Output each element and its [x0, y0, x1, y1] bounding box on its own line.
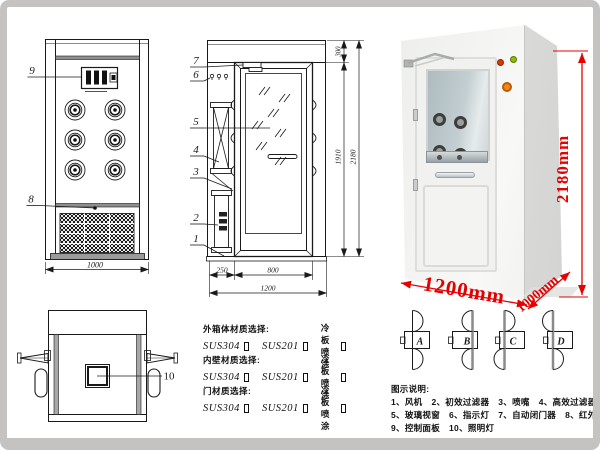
- material-selection: 外箱体材质选择: SUS304 SUS201 冷板喷涂 内壁材质选择: SUS3…: [203, 323, 359, 416]
- legend: 图示说明: 1、风机 2、初效过滤器 3、喷嘴 4、高效过滤器 5、玻璃视窗 6…: [391, 383, 600, 435]
- legend-item: 5、玻璃视窗: [391, 409, 440, 422]
- checkbox[interactable]: [244, 342, 249, 351]
- air-return-grille: [60, 214, 134, 253]
- legend-item: 3、喷嘴: [498, 396, 529, 409]
- nozzle: [433, 113, 446, 126]
- side-label-3: 3: [192, 166, 199, 178]
- door-hinge: [413, 109, 418, 121]
- legend-row: 5、玻璃视窗 6、指示灯 7、自动闭门器 8、红外线感应器: [391, 409, 600, 422]
- door-swing-C: [494, 311, 524, 370]
- legend-item: 1、风机: [391, 396, 422, 409]
- product-photo: [379, 15, 600, 307]
- checkbox[interactable]: [341, 404, 346, 413]
- side-label-2: 2: [193, 212, 199, 224]
- air-shower-datasheet-page: 外箱体材质选择: SUS304 SUS201 冷板喷涂 内壁材质选择: SUS3…: [0, 0, 600, 450]
- checkbox[interactable]: [303, 373, 308, 382]
- control-panel-strip: [426, 151, 488, 163]
- door-config-label-D: D: [556, 337, 564, 348]
- dim-250: 250: [216, 266, 228, 275]
- legend-row: 9、控制面板 10、照明灯: [391, 422, 600, 435]
- floor-shadow: [523, 287, 579, 297]
- door-swing-A: [401, 311, 430, 370]
- legend-item: 2、初效过滤器: [431, 396, 489, 409]
- material-option-label: SUS304: [203, 372, 240, 383]
- indicator-light-red: [497, 59, 504, 66]
- indicator-light-green: [510, 56, 517, 63]
- legend-item: 8、红外线感应器: [565, 409, 600, 422]
- material-option-label: SUS201: [262, 403, 299, 414]
- legend-item: 4、高效过滤器: [539, 396, 597, 409]
- top-view-drawing: [18, 311, 178, 422]
- checkbox[interactable]: [303, 404, 308, 413]
- front-view-drawing: [27, 40, 149, 275]
- side-label-5: 5: [193, 116, 199, 128]
- control-knob: [437, 155, 442, 160]
- front-label-9: 9: [29, 65, 35, 77]
- dim-1910: 1910: [334, 149, 343, 164]
- material-options-row: SUS304 SUS201 冷板喷涂: [203, 400, 359, 416]
- nozzle: [454, 116, 467, 129]
- legend-item: 6、指示灯: [449, 409, 489, 422]
- door-config-label-A: A: [416, 337, 424, 348]
- door-lower-panel: [423, 185, 489, 267]
- side-nozzle-profiles: [231, 100, 316, 176]
- control-knob: [457, 155, 462, 160]
- front-label-8: 8: [28, 194, 34, 206]
- dim-300: 300: [336, 46, 343, 58]
- material-options-row: SUS304 SUS201 冷板喷涂: [203, 338, 359, 354]
- front-width-dim: 1000: [87, 261, 103, 270]
- door-swing-D: [543, 311, 573, 370]
- checkbox[interactable]: [341, 342, 346, 351]
- checkbox[interactable]: [303, 342, 308, 351]
- material-option-label: SUS304: [203, 403, 240, 414]
- door-glass-window: [426, 69, 490, 161]
- cabinet-door: [415, 57, 497, 272]
- checkbox[interactable]: [244, 373, 249, 382]
- side-label-6: 6: [193, 69, 199, 81]
- legend-title: 图示说明:: [391, 383, 600, 396]
- door-swing-options: [401, 311, 573, 370]
- door-swing-B: [449, 311, 478, 370]
- checkbox[interactable]: [244, 404, 249, 413]
- side-view-drawing: [190, 41, 364, 298]
- cabinet-corner-edge: [524, 25, 525, 300]
- side-label-1: 1: [193, 233, 199, 245]
- top-label-10: 10: [164, 371, 176, 383]
- legend-item: 9、控制面板: [391, 422, 440, 435]
- material-options-row: SUS304 SUS201 冷板喷涂: [203, 369, 359, 385]
- emergency-button: [502, 82, 512, 92]
- dim-1200: 1200: [261, 284, 276, 293]
- material-option-label: SUS201: [262, 341, 299, 352]
- cabinet-front-face: [379, 15, 600, 307]
- door-handle: [435, 172, 475, 178]
- material-option-label: 冷板喷涂: [321, 384, 337, 432]
- dim-800: 800: [267, 266, 279, 275]
- dim-2180: 2180: [349, 149, 358, 164]
- legend-item: 10、照明灯: [449, 422, 494, 435]
- material-option-label: SUS304: [203, 341, 240, 352]
- material-option-label: SUS201: [262, 372, 299, 383]
- door-config-label-B: B: [463, 337, 471, 348]
- glass-hatching: [252, 87, 290, 165]
- checkbox[interactable]: [341, 373, 346, 382]
- legend-item: 7、自动闭门器: [498, 409, 556, 422]
- side-label-7: 7: [193, 55, 199, 67]
- door-hinge: [413, 179, 418, 191]
- door-config-label-C: C: [510, 337, 517, 348]
- side-label-4: 4: [193, 144, 199, 156]
- legend-row: 1、风机 2、初效过滤器 3、喷嘴 4、高效过滤器: [391, 396, 600, 409]
